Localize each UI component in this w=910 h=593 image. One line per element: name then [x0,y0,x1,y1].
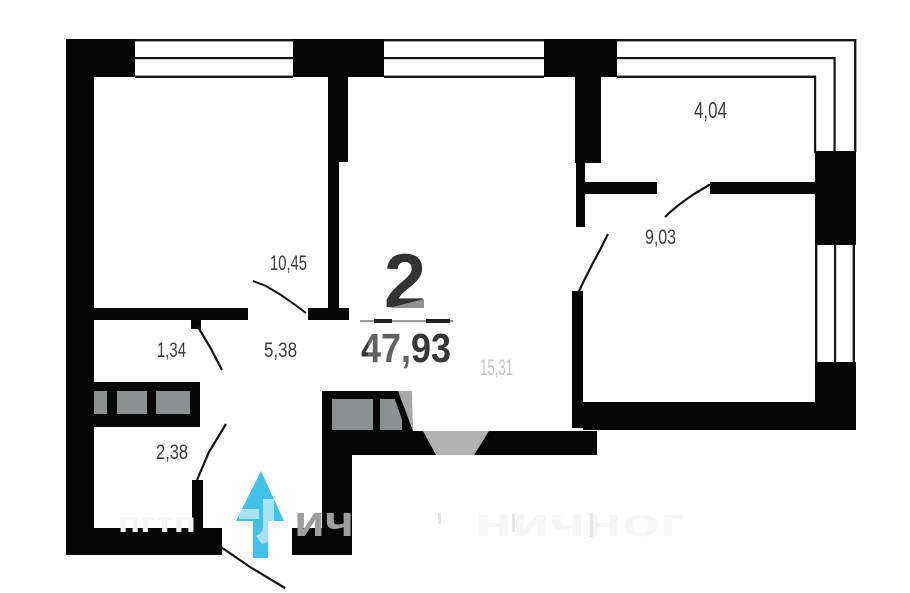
svg-text:ничног: ничног [475,501,685,545]
svg-text:ич: ич [294,497,354,546]
svg-text:9,03: 9,03 [645,226,676,249]
svg-text:пгтп: пгтп [118,507,196,538]
svg-text:4,04: 4,04 [694,97,727,123]
svg-text:5,38: 5,38 [264,339,297,362]
svg-text:2: 2 [384,239,426,324]
svg-text:15,31: 15,31 [480,355,513,380]
svg-text:1,34: 1,34 [157,339,186,362]
svg-text:10,45: 10,45 [270,252,307,275]
svg-text:2,38: 2,38 [156,441,188,464]
